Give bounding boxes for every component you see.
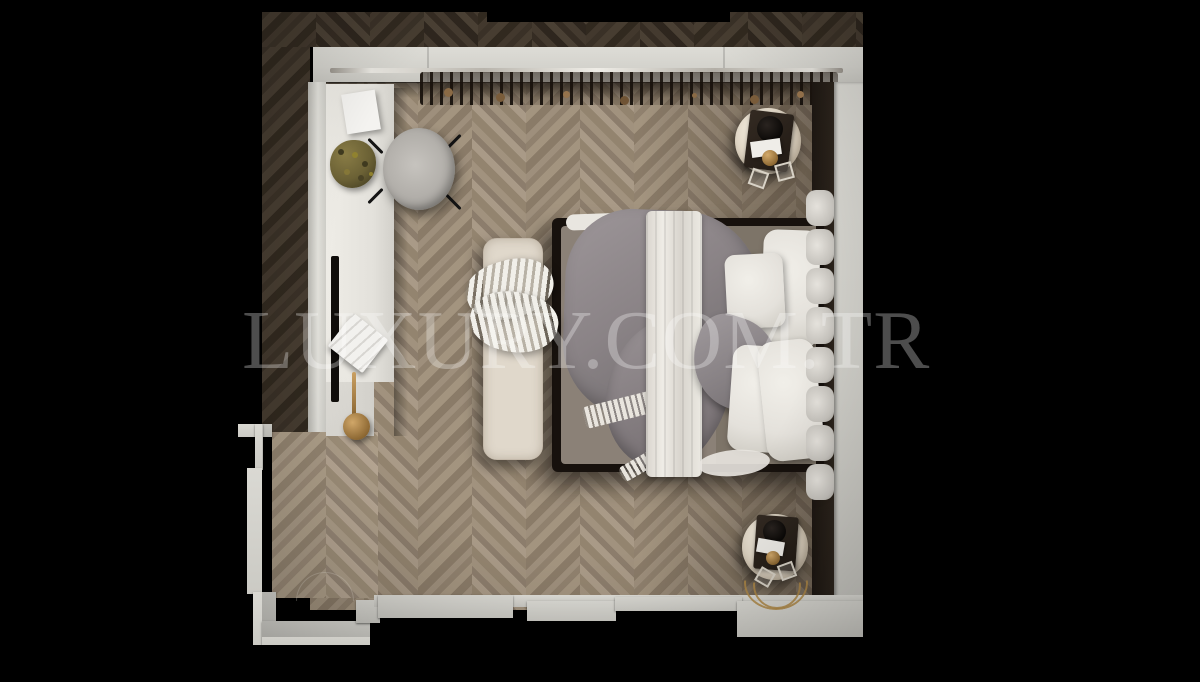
bottom-right-wall-corner	[737, 601, 863, 637]
headboard-cushion	[806, 307, 834, 343]
dark-parquet-left-strip	[262, 47, 310, 432]
bottom-wall-block	[615, 597, 742, 611]
bedroom-render-canvas: LUXURY.COM.TR	[0, 0, 1200, 682]
bottom-wall-block	[378, 595, 513, 618]
channel-tufted-headboard	[806, 190, 834, 500]
white-quilted-runner	[646, 211, 702, 477]
headboard-cushion	[806, 347, 834, 383]
hanging-clothes	[420, 72, 838, 105]
headboard-cushion	[806, 229, 834, 265]
gold-sconce-base	[343, 413, 370, 440]
gold-sconce-stem	[352, 372, 356, 418]
headboard-cushion	[806, 190, 834, 226]
wall-mirror	[331, 256, 339, 402]
top-edge-cutout	[487, 0, 730, 22]
bottom-wall-block	[527, 601, 616, 621]
left-wall	[308, 82, 326, 436]
paper-sheet	[341, 90, 381, 135]
entry-wall-segment	[255, 424, 263, 470]
gold-trinket	[762, 150, 778, 166]
vanity-chair	[383, 128, 455, 210]
headboard-cushion	[806, 425, 834, 461]
headboard-cushion	[806, 386, 834, 422]
entry-wall-segment	[247, 468, 262, 594]
headboard-cushion	[806, 268, 834, 304]
entry-wall-segment	[262, 621, 370, 645]
headboard-cushion	[806, 464, 834, 500]
right-wall	[834, 82, 863, 637]
